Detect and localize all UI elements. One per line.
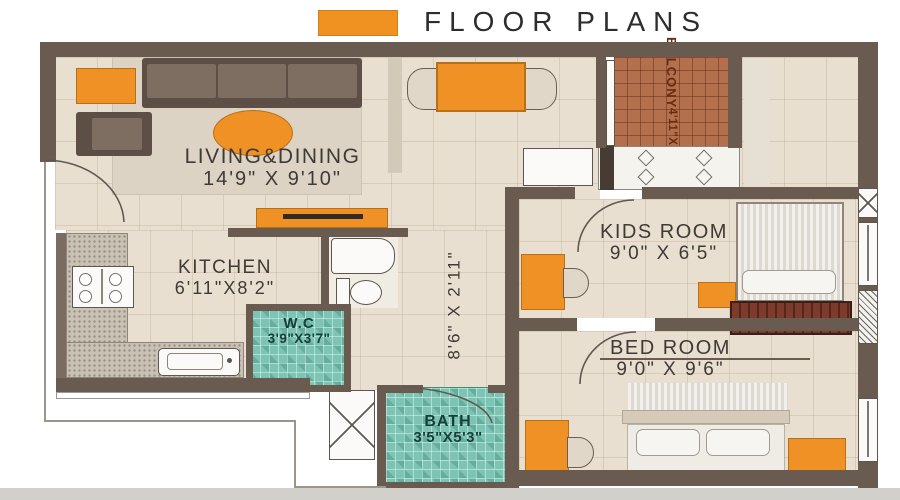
wall [344,304,351,392]
stove-burner-icon [79,290,92,303]
utility-counter [598,146,740,190]
wall [246,304,253,392]
sofa-cushion [288,64,357,98]
dining-table [436,62,526,112]
room-dims: 8'6" X 2'11" [445,250,465,359]
floor-plan-image: FLOOR PLANS BALCONY 4'11"X3'0" [0,0,900,500]
tv [283,214,363,219]
label-kids-room: KIDS ROOM 9'0" X 6'5" [575,222,753,264]
window [858,398,878,462]
headboard [622,410,790,424]
wall [40,42,878,57]
room-dims: 6'11"X8'2" [150,279,300,298]
window-mullion [867,401,869,457]
wall [377,385,386,488]
page-title: FLOOR PLANS [424,6,708,38]
wall [228,228,408,237]
bedroom-desk [525,420,569,476]
wall [596,57,606,148]
room-dims: 3'5"X5'3" [398,430,498,446]
appliance [523,148,593,186]
stove-burner-icon [79,273,92,286]
room-name: LIVING&DINING [165,146,380,169]
wall [728,57,742,148]
duct [744,60,770,186]
wall [40,42,56,162]
wall [655,318,878,331]
room-dims: 14'9" X 9'10" [165,169,380,191]
balcony-door [606,60,615,146]
armchair-seat [92,118,142,150]
sofa [142,58,362,108]
floor-balcony: BALCONY 4'11"X3'0" [614,57,728,149]
shaft-window-cross-icon [329,390,375,460]
room-name: KITCHEN [150,258,300,279]
wall [246,304,350,311]
wall [246,385,350,392]
wall [642,187,878,199]
outline [294,420,296,488]
room-name: W.C [260,316,338,332]
image-bottom-strip [0,488,900,500]
wall [505,470,878,486]
sofa-cushion [147,64,216,98]
room-name: BED ROOM [578,338,763,360]
entrance-door-arc [46,160,126,224]
pillow [706,429,770,456]
double-bed [627,424,785,476]
side-table [76,68,136,104]
legend-swatch-icon [318,10,398,36]
pillow [636,429,700,456]
window-cross-icon [858,188,878,218]
label-wc: W.C 3'9"X3'7" [260,316,338,347]
window-sill [56,392,310,399]
sofa-cushion [218,64,287,98]
stove-burner-icon [109,273,122,286]
window-hatched [858,290,878,344]
stove-divider [101,269,103,304]
room-dims: 3'9"X3'7" [260,332,338,347]
half-wall [388,57,402,173]
label-balcony: BALCONY 4'11"X3'0" [614,57,728,149]
wall [56,233,66,384]
nightstand [788,438,846,472]
stove [72,266,134,308]
sink-basin [167,353,223,370]
tv-unit [256,208,388,228]
faucet [227,358,232,363]
dining-chair [523,68,557,110]
pillow [742,270,836,294]
room-dims: 9'0" X 9'6" [578,360,763,381]
kids-desk [521,254,565,310]
label-bed-room: BED ROOM 9'0" X 9'6" [578,338,763,380]
toilet-bowl [350,280,382,305]
wall [321,232,329,308]
outline [44,420,296,422]
armchair [76,112,152,156]
wall [488,385,519,393]
room-name: KIDS ROOM [575,222,753,244]
label-passage: 8'6" X 2'11" [410,225,500,385]
label-kitchen: KITCHEN 6'11"X8'2" [150,258,300,298]
stove-burner-icon [109,290,122,303]
wash-basin [331,238,395,274]
utility-cabinet [600,146,614,190]
window [858,222,878,286]
toilet-tank [336,278,350,306]
window-mullion [867,225,869,281]
wall [505,187,519,488]
room-dims: 9'0" X 6'5" [575,244,753,265]
label-bath: BATH 3'5"X5'3" [398,413,498,446]
room-name: BATH [398,413,498,430]
sink [158,348,240,376]
label-living-dining: LIVING&DINING 14'9" X 9'10" [165,146,380,190]
